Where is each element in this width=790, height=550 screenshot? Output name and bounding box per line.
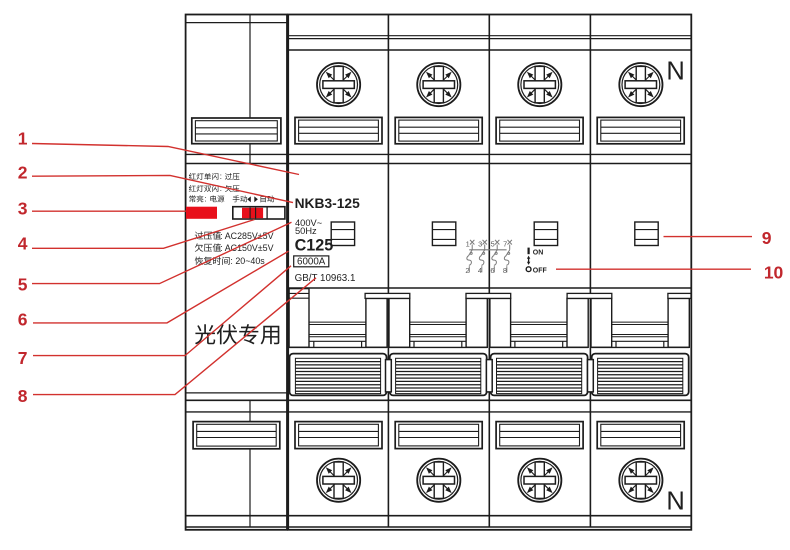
svg-text:3: 3 — [18, 198, 28, 218]
svg-text:6: 6 — [18, 309, 28, 329]
svg-text:OFF: OFF — [533, 267, 548, 274]
svg-text:8: 8 — [18, 386, 28, 406]
svg-text:1: 1 — [18, 128, 28, 148]
svg-text:7: 7 — [18, 348, 28, 368]
svg-text:: AC285V±5V: : AC285V±5V — [220, 231, 273, 241]
svg-text:6: 6 — [490, 266, 494, 275]
svg-text:C125: C125 — [295, 236, 334, 254]
svg-text:50Hz: 50Hz — [295, 226, 317, 236]
svg-text:10: 10 — [764, 262, 784, 282]
svg-text:: 20~40s: : 20~40s — [230, 256, 265, 266]
svg-text:7: 7 — [503, 239, 507, 248]
svg-text:2: 2 — [18, 162, 28, 182]
svg-text:NKB3-125: NKB3-125 — [295, 196, 361, 211]
svg-text:N: N — [666, 57, 684, 85]
svg-text::: : — [205, 195, 207, 204]
svg-text:3: 3 — [478, 239, 482, 248]
svg-text:5: 5 — [18, 274, 28, 294]
svg-text:8: 8 — [503, 266, 507, 275]
svg-text::: : — [220, 184, 222, 193]
svg-text::: : — [220, 172, 222, 181]
svg-text:4: 4 — [478, 266, 482, 275]
svg-text:9: 9 — [762, 228, 772, 248]
svg-text:4: 4 — [18, 233, 28, 253]
svg-text:ON: ON — [533, 250, 544, 257]
svg-text:1: 1 — [466, 239, 470, 248]
svg-text:2: 2 — [465, 266, 469, 275]
svg-text:GB/T 10963.1: GB/T 10963.1 — [295, 273, 356, 284]
svg-text:N: N — [666, 488, 684, 516]
svg-text:5: 5 — [491, 239, 495, 248]
svg-text:6000A: 6000A — [297, 257, 326, 268]
